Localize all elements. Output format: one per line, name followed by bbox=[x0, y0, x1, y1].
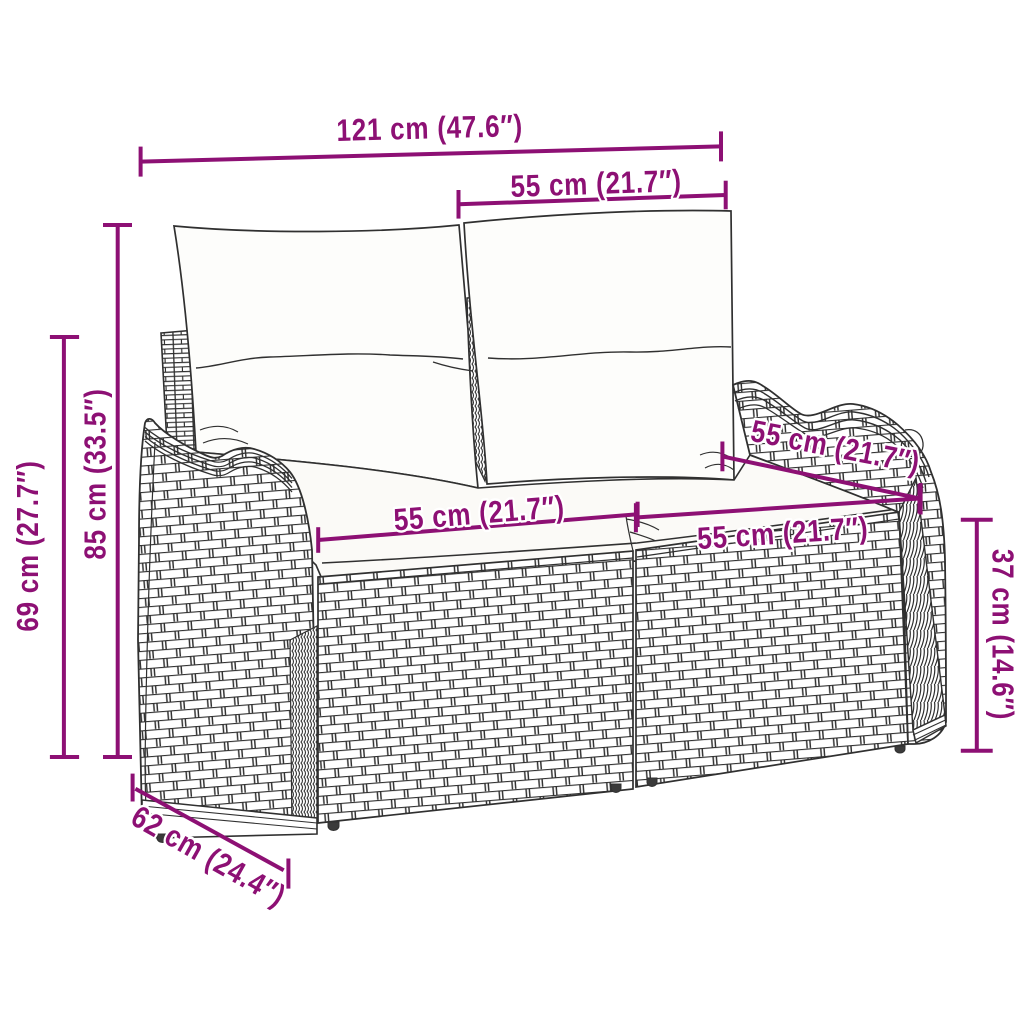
svg-text:121 cm (47.6″): 121 cm (47.6″) bbox=[336, 109, 523, 149]
svg-text:37 cm (14.6″): 37 cm (14.6″) bbox=[985, 549, 1020, 720]
svg-text:85 cm (33.5″): 85 cm (33.5″) bbox=[78, 388, 113, 559]
svg-text:55 cm (21.7″): 55 cm (21.7″) bbox=[510, 164, 682, 205]
svg-text:69 cm (27.7″): 69 cm (27.7″) bbox=[11, 460, 46, 631]
